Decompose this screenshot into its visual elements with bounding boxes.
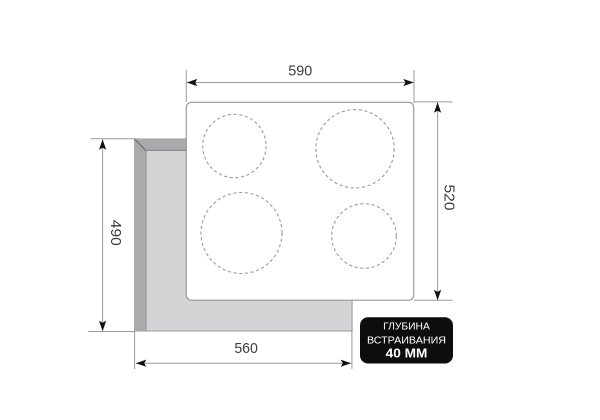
svg-text:560: 560	[234, 340, 258, 357]
svg-text:590: 590	[288, 62, 312, 79]
svg-text:520: 520	[440, 185, 457, 211]
svg-text:490: 490	[107, 220, 124, 246]
svg-text:ВСТРАИВАНИЯ: ВСТРАИВАНИЯ	[367, 335, 446, 346]
svg-text:40 ММ: 40 ММ	[386, 347, 428, 361]
svg-text:ГЛУБИНА: ГЛУБИНА	[383, 321, 430, 332]
